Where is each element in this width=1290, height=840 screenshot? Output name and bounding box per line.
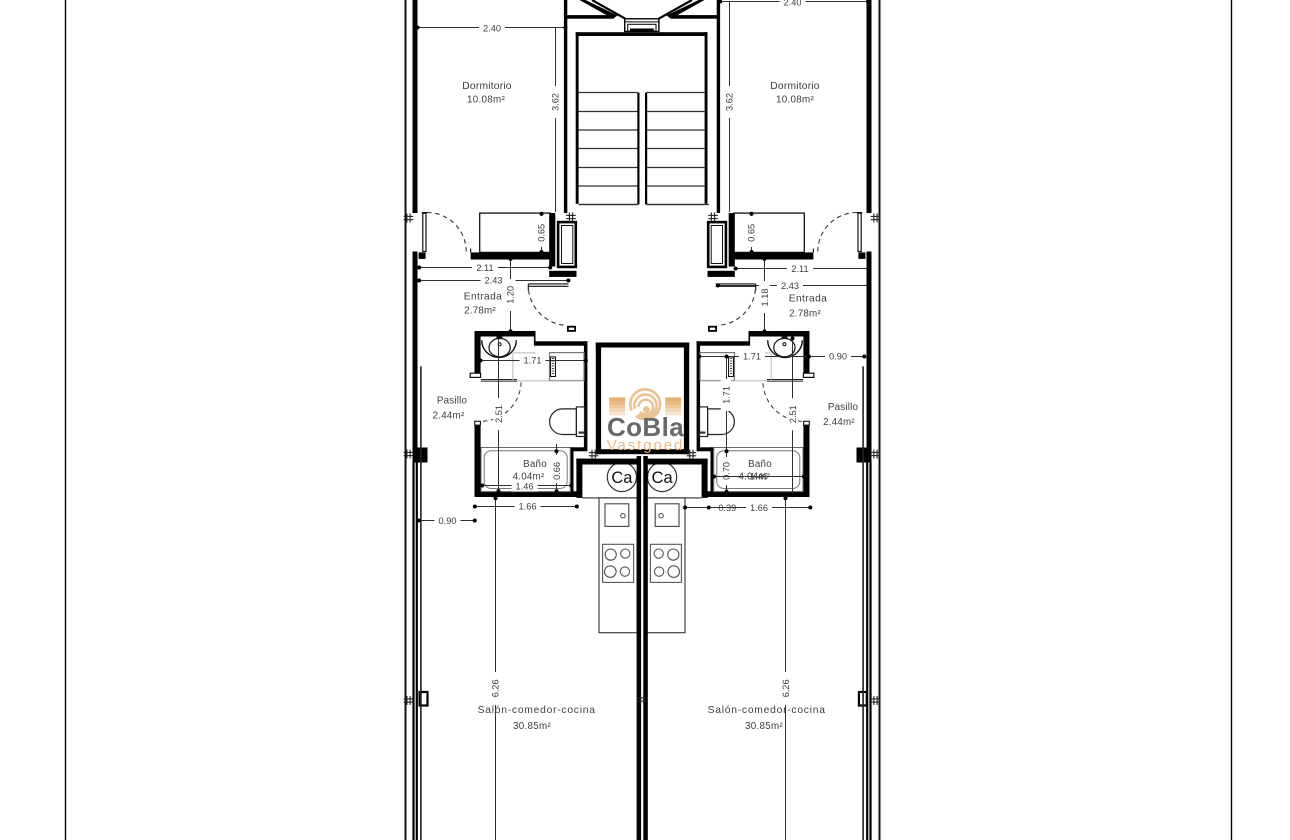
svg-text:4.04m²: 4.04m² [513,472,545,483]
svg-text:2.43: 2.43 [781,281,799,291]
svg-text:2.51: 2.51 [494,405,504,423]
svg-text:Vastgoed: Vastgoed [607,437,684,454]
svg-text:1.20: 1.20 [506,286,516,304]
svg-text:Salón-comedor-cocina: Salón-comedor-cocina [708,705,826,716]
svg-text:6.26: 6.26 [781,679,791,697]
svg-text:1.46: 1.46 [516,481,534,491]
svg-text:30.85m²: 30.85m² [745,721,783,732]
svg-text:1.66: 1.66 [519,502,537,512]
svg-text:Pasillo: Pasillo [437,395,468,406]
svg-text:1.71: 1.71 [722,386,732,404]
svg-text:0.90: 0.90 [829,352,847,362]
svg-text:2.11: 2.11 [791,264,808,274]
svg-text:Ca: Ca [611,469,633,487]
svg-text:0.65: 0.65 [537,224,547,242]
svg-text:30.85m²: 30.85m² [513,721,551,732]
svg-text:1.71: 1.71 [743,352,761,362]
svg-text:0.65: 0.65 [747,224,757,242]
svg-text:1.18: 1.18 [760,289,770,307]
svg-text:Baño: Baño [523,459,547,470]
svg-text:2.11: 2.11 [476,263,493,273]
svg-text:2.51: 2.51 [788,405,798,423]
svg-text:2.44m²: 2.44m² [823,417,855,428]
svg-text:1.66: 1.66 [750,503,768,513]
svg-text:Salón-comedor-cocina: Salón-comedor-cocina [478,705,596,716]
svg-text:10.08m²: 10.08m² [776,95,814,106]
svg-text:2.78m²: 2.78m² [464,305,496,316]
svg-text:2.40: 2.40 [483,23,501,33]
svg-text:3.62: 3.62 [550,93,560,111]
svg-text:3.62: 3.62 [725,93,735,111]
svg-text:Baño: Baño [748,459,772,470]
svg-text:Dormitorio: Dormitorio [770,81,820,92]
svg-text:2.44m²: 2.44m² [433,411,465,422]
svg-text:0.90: 0.90 [439,516,457,526]
svg-text:0.70: 0.70 [722,462,732,480]
svg-text:Ca: Ca [652,469,674,487]
svg-text:Pasillo: Pasillo [828,402,859,413]
svg-text:1.71: 1.71 [524,355,542,365]
svg-text:0.66: 0.66 [552,462,562,480]
svg-text:Entrada: Entrada [789,294,827,305]
svg-text:2.40: 2.40 [784,0,802,8]
svg-text:0.39: 0.39 [718,503,736,513]
svg-text:Entrada: Entrada [464,292,502,303]
svg-text:2.43: 2.43 [485,276,503,286]
svg-text:2.78m²: 2.78m² [789,308,821,319]
svg-text:10.08m²: 10.08m² [467,95,505,106]
svg-text:4.04m²: 4.04m² [738,472,770,483]
svg-text:Dormitorio: Dormitorio [462,81,512,92]
svg-text:6.26: 6.26 [491,679,501,697]
